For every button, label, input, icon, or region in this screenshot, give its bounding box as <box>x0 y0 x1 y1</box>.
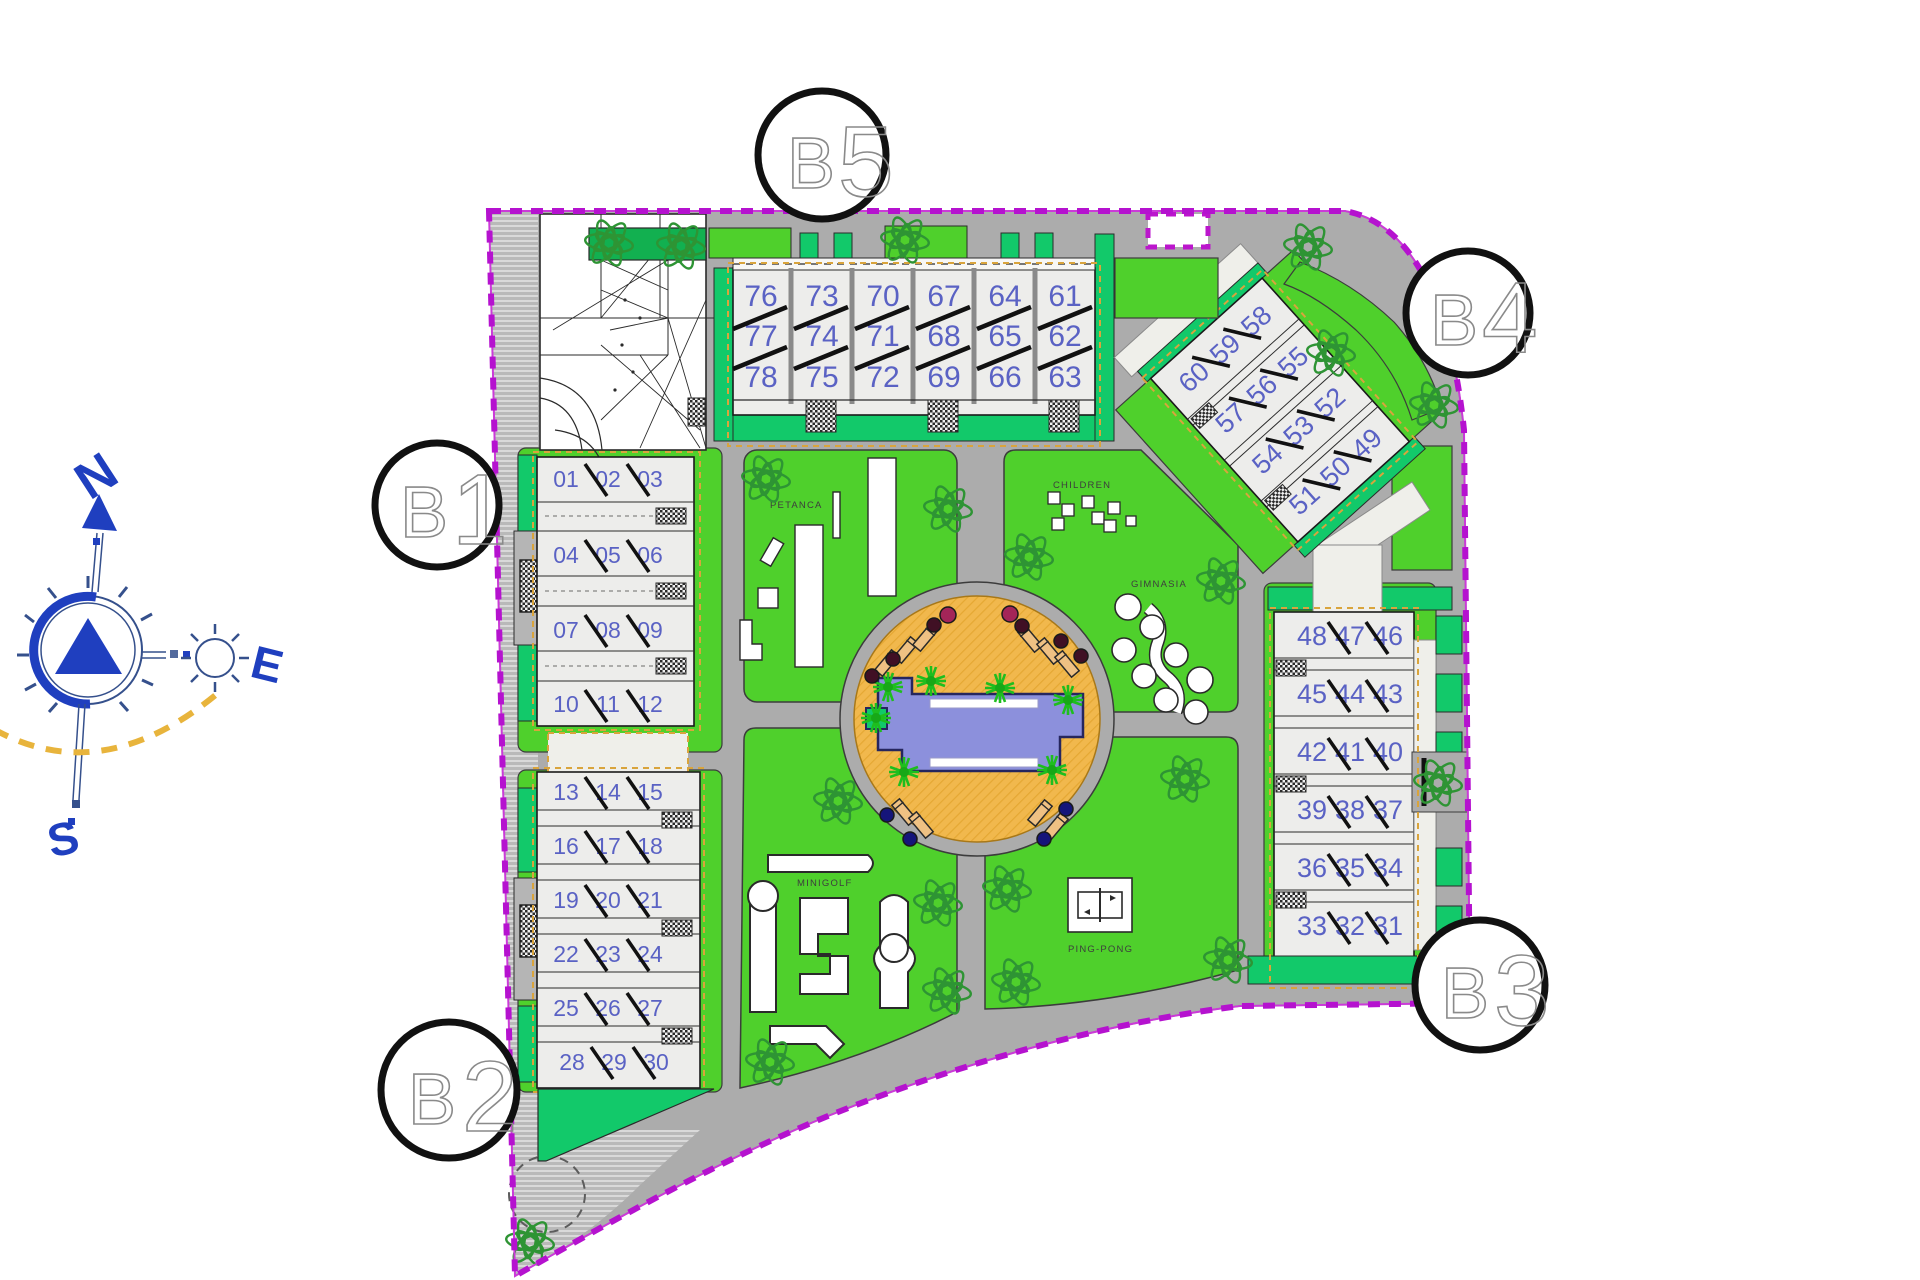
svg-text:B: B <box>400 473 448 553</box>
svg-text:3: 3 <box>1494 935 1550 1047</box>
svg-text:75: 75 <box>805 361 838 394</box>
svg-text:70: 70 <box>866 280 899 313</box>
svg-text:PING-PONG: PING-PONG <box>1068 944 1133 955</box>
svg-text:B: B <box>1430 281 1478 361</box>
svg-text:20: 20 <box>595 887 621 913</box>
svg-text:B: B <box>1441 954 1489 1034</box>
svg-text:01: 01 <box>553 466 579 492</box>
svg-text:73: 73 <box>805 280 838 313</box>
svg-text:03: 03 <box>637 466 663 492</box>
svg-text:CHILDREN: CHILDREN <box>1053 480 1111 491</box>
svg-text:06: 06 <box>637 542 663 568</box>
svg-text:4: 4 <box>1482 262 1538 374</box>
svg-text:64: 64 <box>988 280 1021 313</box>
svg-text:GIMNASIA: GIMNASIA <box>1131 579 1187 590</box>
svg-text:61: 61 <box>1048 280 1081 313</box>
svg-text:18: 18 <box>637 833 663 859</box>
svg-text:67: 67 <box>927 280 960 313</box>
svg-text:23: 23 <box>595 941 621 967</box>
svg-text:63: 63 <box>1048 361 1081 394</box>
svg-text:45: 45 <box>1297 679 1327 709</box>
svg-text:09: 09 <box>637 617 663 643</box>
svg-text:39: 39 <box>1297 795 1327 825</box>
svg-text:69: 69 <box>927 361 960 394</box>
svg-text:33: 33 <box>1297 911 1327 941</box>
svg-text:02: 02 <box>595 466 621 492</box>
svg-text:65: 65 <box>988 320 1021 353</box>
svg-text:1: 1 <box>452 454 508 566</box>
svg-text:25: 25 <box>553 995 579 1021</box>
svg-text:05: 05 <box>595 542 621 568</box>
svg-text:17: 17 <box>595 833 621 859</box>
svg-text:29: 29 <box>601 1049 627 1075</box>
svg-text:72: 72 <box>866 361 899 394</box>
svg-text:48: 48 <box>1297 621 1327 651</box>
svg-text:26: 26 <box>595 995 621 1021</box>
svg-text:21: 21 <box>637 887 663 913</box>
svg-text:08: 08 <box>595 617 621 643</box>
svg-text:MINIGOLF: MINIGOLF <box>797 878 853 889</box>
svg-text:28: 28 <box>559 1049 585 1075</box>
svg-text:5: 5 <box>838 106 894 218</box>
svg-text:15: 15 <box>637 779 663 805</box>
svg-text:19: 19 <box>553 887 579 913</box>
svg-text:04: 04 <box>553 542 579 568</box>
svg-text:68: 68 <box>927 320 960 353</box>
svg-text:36: 36 <box>1297 853 1327 883</box>
svg-text:78: 78 <box>744 361 777 394</box>
svg-text:16: 16 <box>553 833 579 859</box>
svg-text:66: 66 <box>988 361 1021 394</box>
svg-text:PETANCA: PETANCA <box>770 500 823 511</box>
svg-text:22: 22 <box>553 941 579 967</box>
svg-text:42: 42 <box>1297 737 1327 767</box>
svg-text:14: 14 <box>595 779 621 805</box>
svg-text:76: 76 <box>744 280 777 313</box>
svg-text:74: 74 <box>805 320 838 353</box>
svg-text:B: B <box>408 1060 456 1140</box>
svg-text:2: 2 <box>462 1041 518 1153</box>
svg-text:10: 10 <box>553 691 579 717</box>
svg-text:13: 13 <box>553 779 579 805</box>
svg-text:71: 71 <box>866 320 899 353</box>
svg-text:24: 24 <box>637 941 663 967</box>
svg-text:30: 30 <box>643 1049 669 1075</box>
svg-text:77: 77 <box>744 320 777 353</box>
svg-text:07: 07 <box>553 617 579 643</box>
svg-text:27: 27 <box>637 995 663 1021</box>
svg-text:B: B <box>787 124 835 204</box>
